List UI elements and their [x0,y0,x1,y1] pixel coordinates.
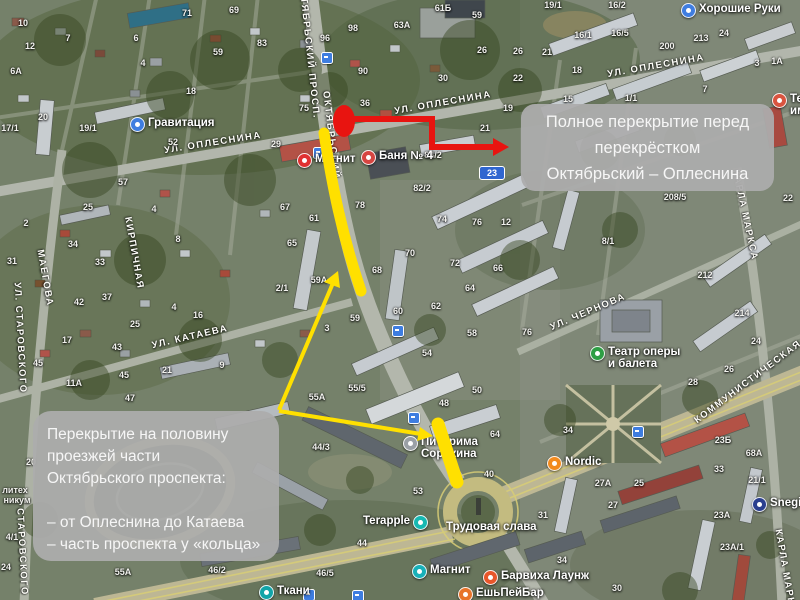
full-closure-marker [333,105,509,156]
note-line: – от Оплеснина до Катаева [47,512,279,534]
note-line: перекрёстком [521,135,774,161]
note-line: Полное перекрытие перед [521,109,774,135]
note-line: Октябрьского проспекта: [47,468,279,490]
half-closure-note: Перекрытие на половину проезжей части Ок… [33,411,279,561]
note-line [47,490,279,512]
note-line: – часть проспекта у «кольца» [47,534,279,556]
full-closure-note: Полное перекрытие перед перекрёстком Окт… [521,104,774,191]
note-line: Перекрытие на половину [47,424,279,446]
satellite-map[interactable]: Октябрьский просп.Октябрьскийул. Оплесни… [0,0,800,600]
half-closure-highlight [279,133,457,482]
note-line: проезжей части [47,446,279,468]
note-line: Октябрьский – Оплеснина [521,161,774,187]
